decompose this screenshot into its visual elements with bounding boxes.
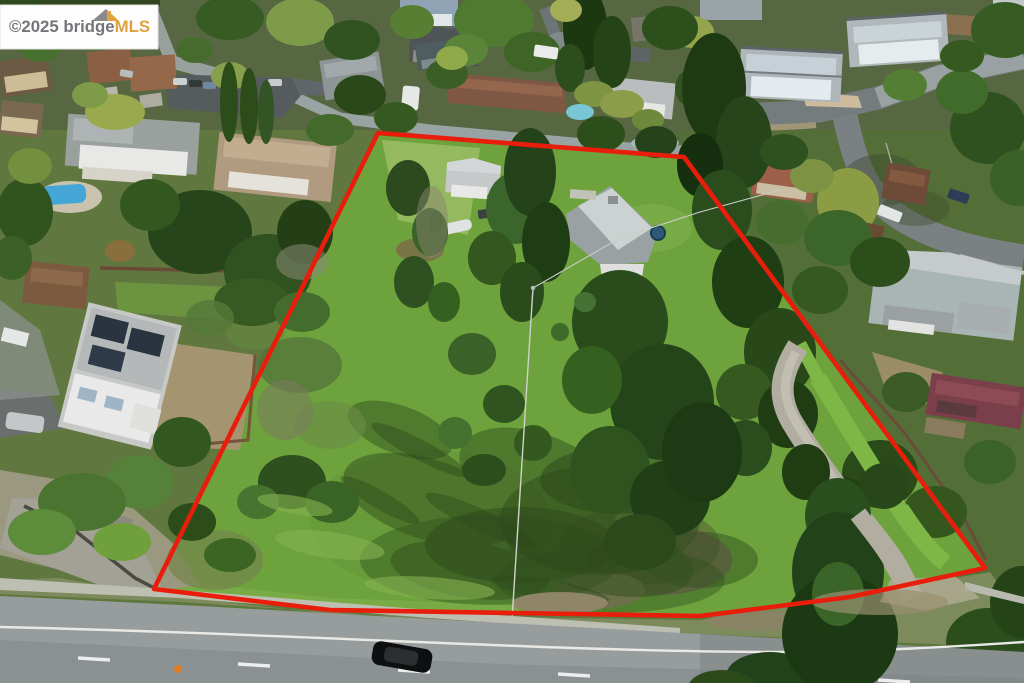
svg-text:©2025 bridgeMLS: ©2025 bridgeMLS: [9, 17, 150, 36]
